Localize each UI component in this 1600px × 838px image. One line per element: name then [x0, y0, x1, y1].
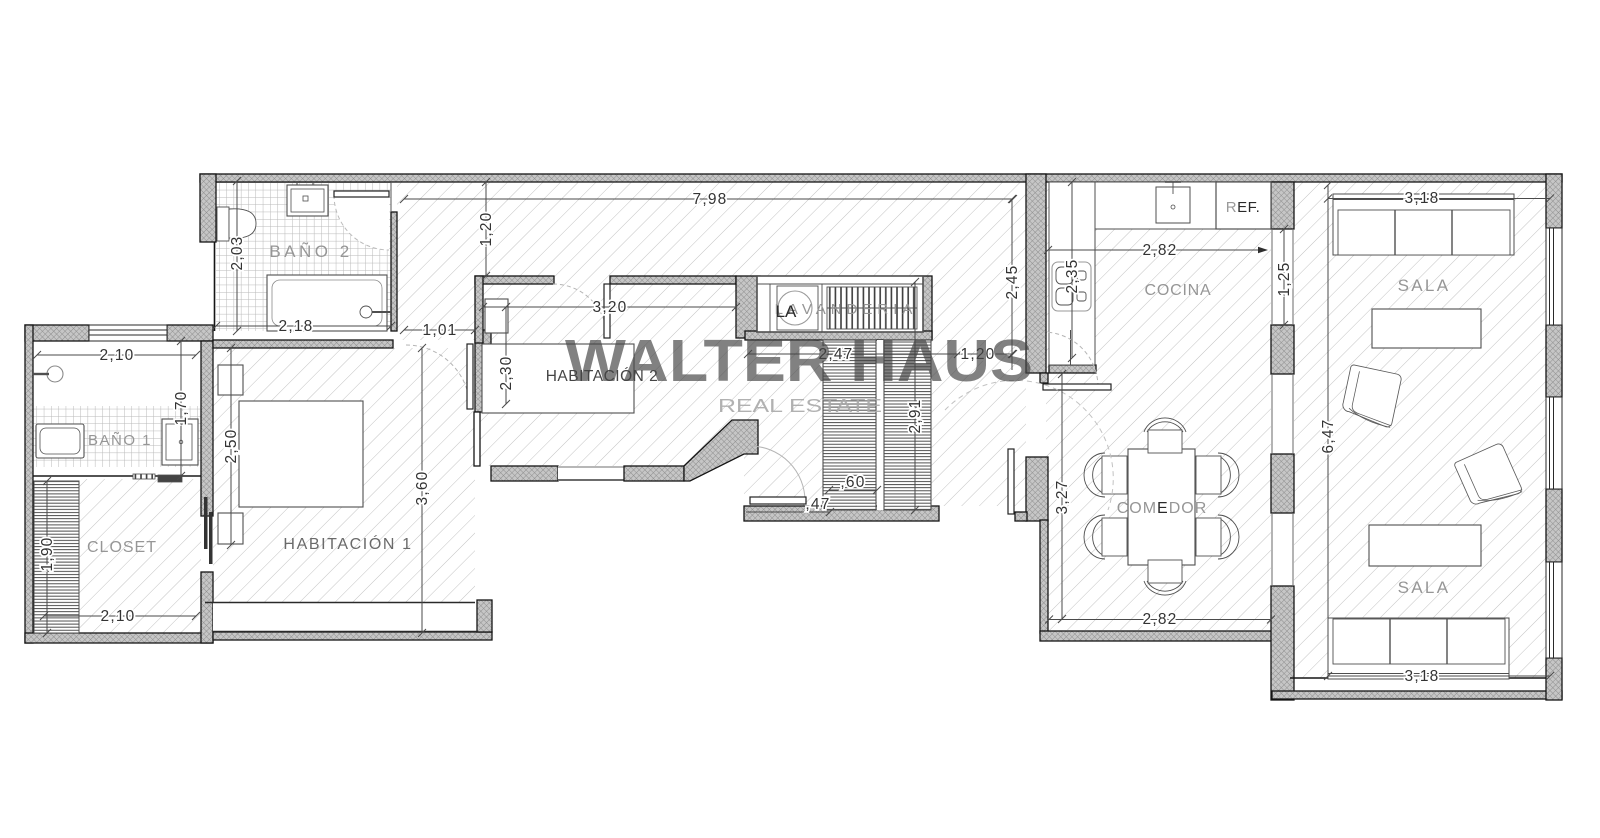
svg-text:1,25: 1,25	[1276, 262, 1293, 297]
svg-text:BAÑO 2: BAÑO 2	[269, 242, 352, 261]
svg-text:1,90: 1,90	[39, 537, 56, 572]
svg-text:2,50: 2,50	[223, 429, 240, 464]
svg-text:3,20: 3,20	[593, 299, 628, 316]
svg-text:2,18: 2,18	[279, 318, 314, 335]
svg-text:3,27: 3,27	[1054, 480, 1071, 515]
svg-text:CLOSET: CLOSET	[87, 539, 157, 556]
svg-text:2,03: 2,03	[229, 236, 246, 271]
svg-text:WALTER HAUS: WALTER HAUS	[565, 328, 1033, 394]
svg-text:SALA: SALA	[1398, 276, 1451, 295]
svg-text:2,82: 2,82	[1143, 611, 1178, 628]
svg-text:2,91: 2,91	[907, 399, 924, 434]
svg-text:1,20: 1,20	[478, 212, 495, 247]
svg-text:2,30: 2,30	[498, 356, 515, 391]
svg-text:COMEDOR: COMEDOR	[1117, 500, 1208, 517]
svg-text:BAÑO 1: BAÑO 1	[88, 432, 152, 449]
svg-text:2,10: 2,10	[101, 608, 136, 625]
svg-text:3,60: 3,60	[414, 471, 431, 506]
svg-text:SALA: SALA	[1398, 578, 1451, 597]
svg-text:2,10: 2,10	[100, 347, 135, 364]
svg-text:COCINA: COCINA	[1144, 282, 1211, 299]
svg-text:2,45: 2,45	[1004, 265, 1021, 300]
svg-text:LA: LA	[776, 302, 797, 321]
svg-text:REAL ESTATE: REAL ESTATE	[718, 396, 882, 416]
svg-text:3,18: 3,18	[1405, 190, 1440, 207]
svg-text:7,98: 7,98	[693, 191, 728, 208]
svg-text:3,18: 3,18	[1405, 668, 1440, 685]
svg-text:HABITACIÓN 1: HABITACIÓN 1	[283, 534, 412, 553]
svg-text:6,47: 6,47	[1320, 419, 1337, 454]
svg-text:,47: ,47	[805, 496, 830, 513]
svg-text:REF.: REF.	[1226, 199, 1261, 216]
svg-text:1,01: 1,01	[423, 322, 458, 339]
svg-text:,60: ,60	[840, 474, 865, 491]
svg-text:2,35: 2,35	[1064, 259, 1081, 294]
svg-text:2,82: 2,82	[1143, 242, 1178, 259]
svg-text:1,70: 1,70	[173, 391, 190, 426]
